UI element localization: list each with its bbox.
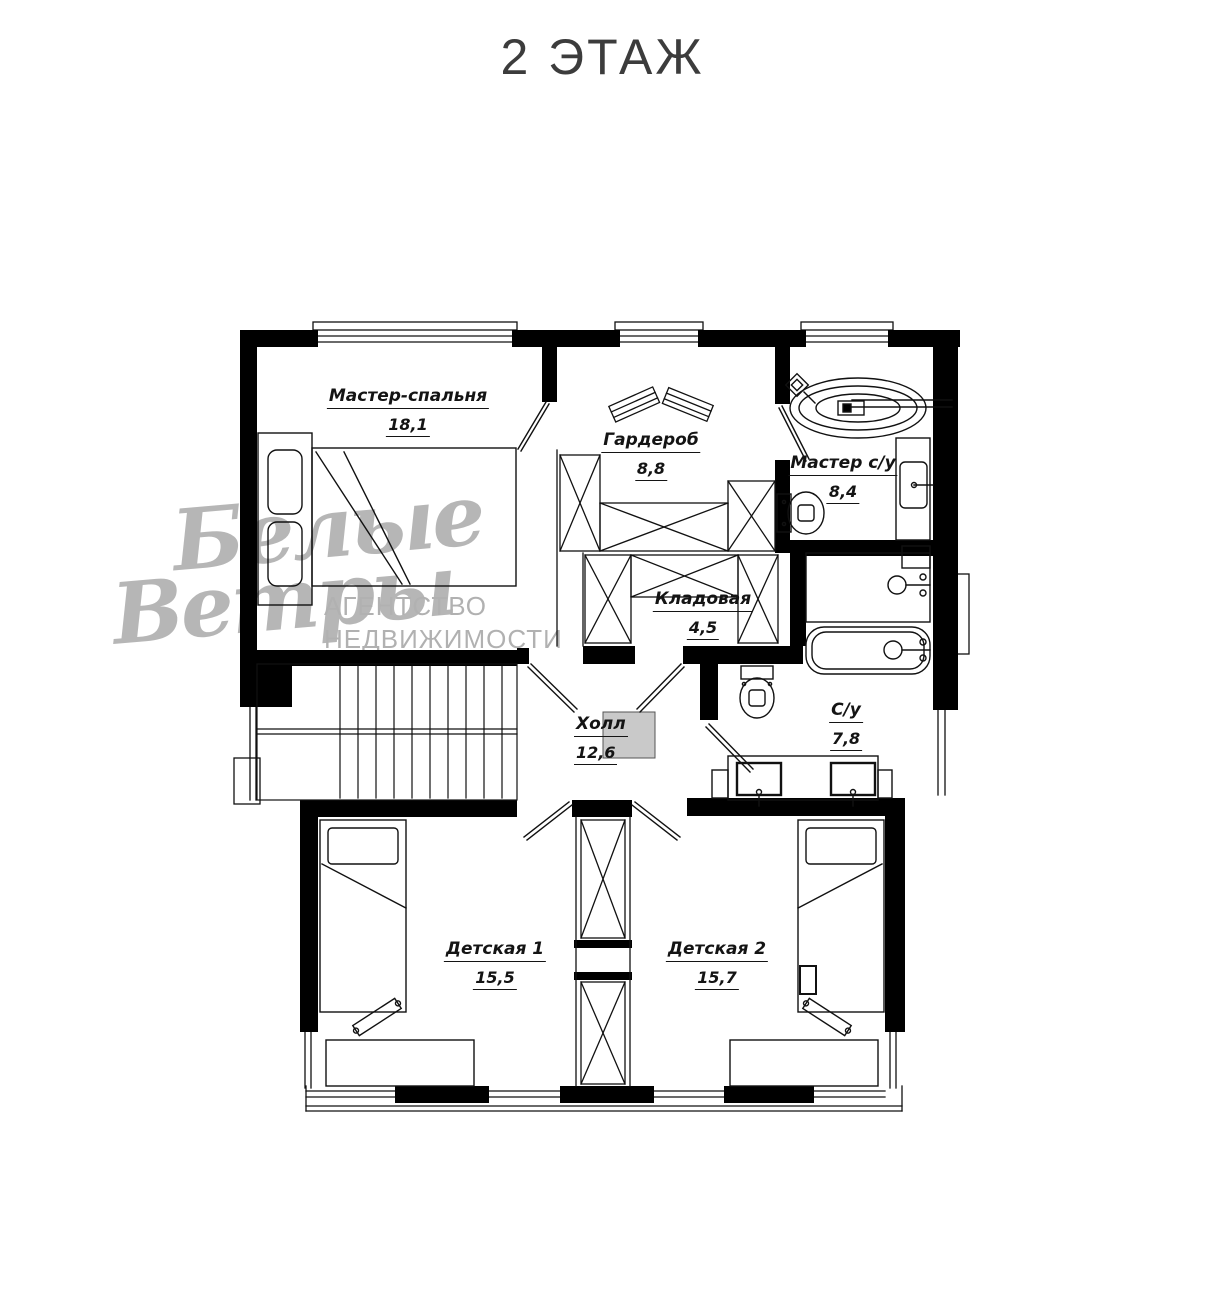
- floor-plan-drawing: [0, 0, 1205, 1315]
- room-label-wardrobe: Гардероб 8,8: [601, 432, 700, 481]
- master-bed: [258, 433, 516, 605]
- desk-2: [730, 997, 878, 1086]
- staircase: [257, 664, 517, 800]
- freestanding-bathtub: [790, 378, 952, 438]
- bathtub: [806, 627, 930, 674]
- room-label-kids-room-1: Детская 1 15,5: [444, 941, 546, 990]
- room-label-kids-room-2: Детская 2 15,7: [666, 941, 768, 990]
- room-label-storage: Кладовая 4,5: [653, 591, 753, 640]
- room-label-hall: Холл 12,6: [574, 716, 628, 765]
- clothes-rack-icon: [662, 388, 713, 422]
- floor-plan-page: 2 ЭТАЖ Белые Ветры АГЕНТСТВО НЕДВИЖИМОСТ…: [0, 0, 1205, 1315]
- wall-outlet: [800, 966, 816, 994]
- room-label-master-bath: Мастер с/у 8,4: [788, 455, 897, 504]
- toilet: [740, 666, 774, 718]
- clothes-rack-icon: [609, 387, 660, 422]
- room-label-bathroom: С/у 7,8: [829, 702, 863, 751]
- desk-1: [326, 997, 474, 1086]
- kids-bed-2: [798, 820, 884, 1012]
- kids-bed-1: [320, 820, 406, 1012]
- room-label-master-bedroom: Мастер-спальня 18,1: [327, 388, 489, 437]
- built-in-wardrobes: [576, 817, 630, 1086]
- shower-area: [806, 553, 930, 622]
